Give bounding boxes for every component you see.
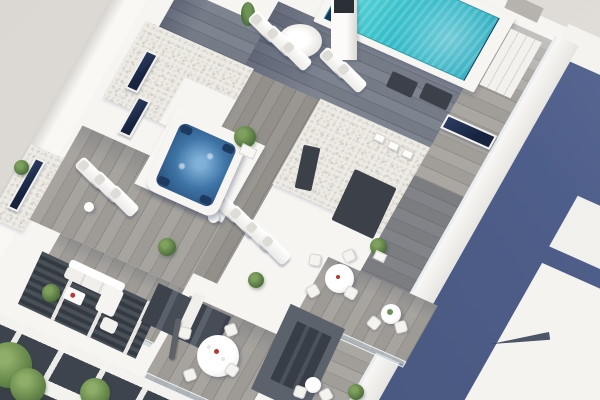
side-table (84, 202, 94, 212)
red-decor (336, 275, 340, 279)
plate (207, 345, 211, 349)
rooftop-render (0, 0, 600, 400)
shrub (248, 272, 264, 288)
red-decor (214, 349, 219, 354)
street-tree (10, 368, 46, 400)
plate (221, 357, 225, 361)
table-plant (387, 309, 393, 315)
chimney-vent (334, 0, 354, 13)
street-tree (80, 378, 110, 400)
small-table (305, 377, 321, 393)
shrub (42, 284, 60, 302)
dining-chair (308, 253, 322, 267)
armchair (99, 316, 119, 335)
shrub (14, 160, 29, 175)
shrub (158, 238, 176, 256)
shrub (348, 384, 364, 400)
